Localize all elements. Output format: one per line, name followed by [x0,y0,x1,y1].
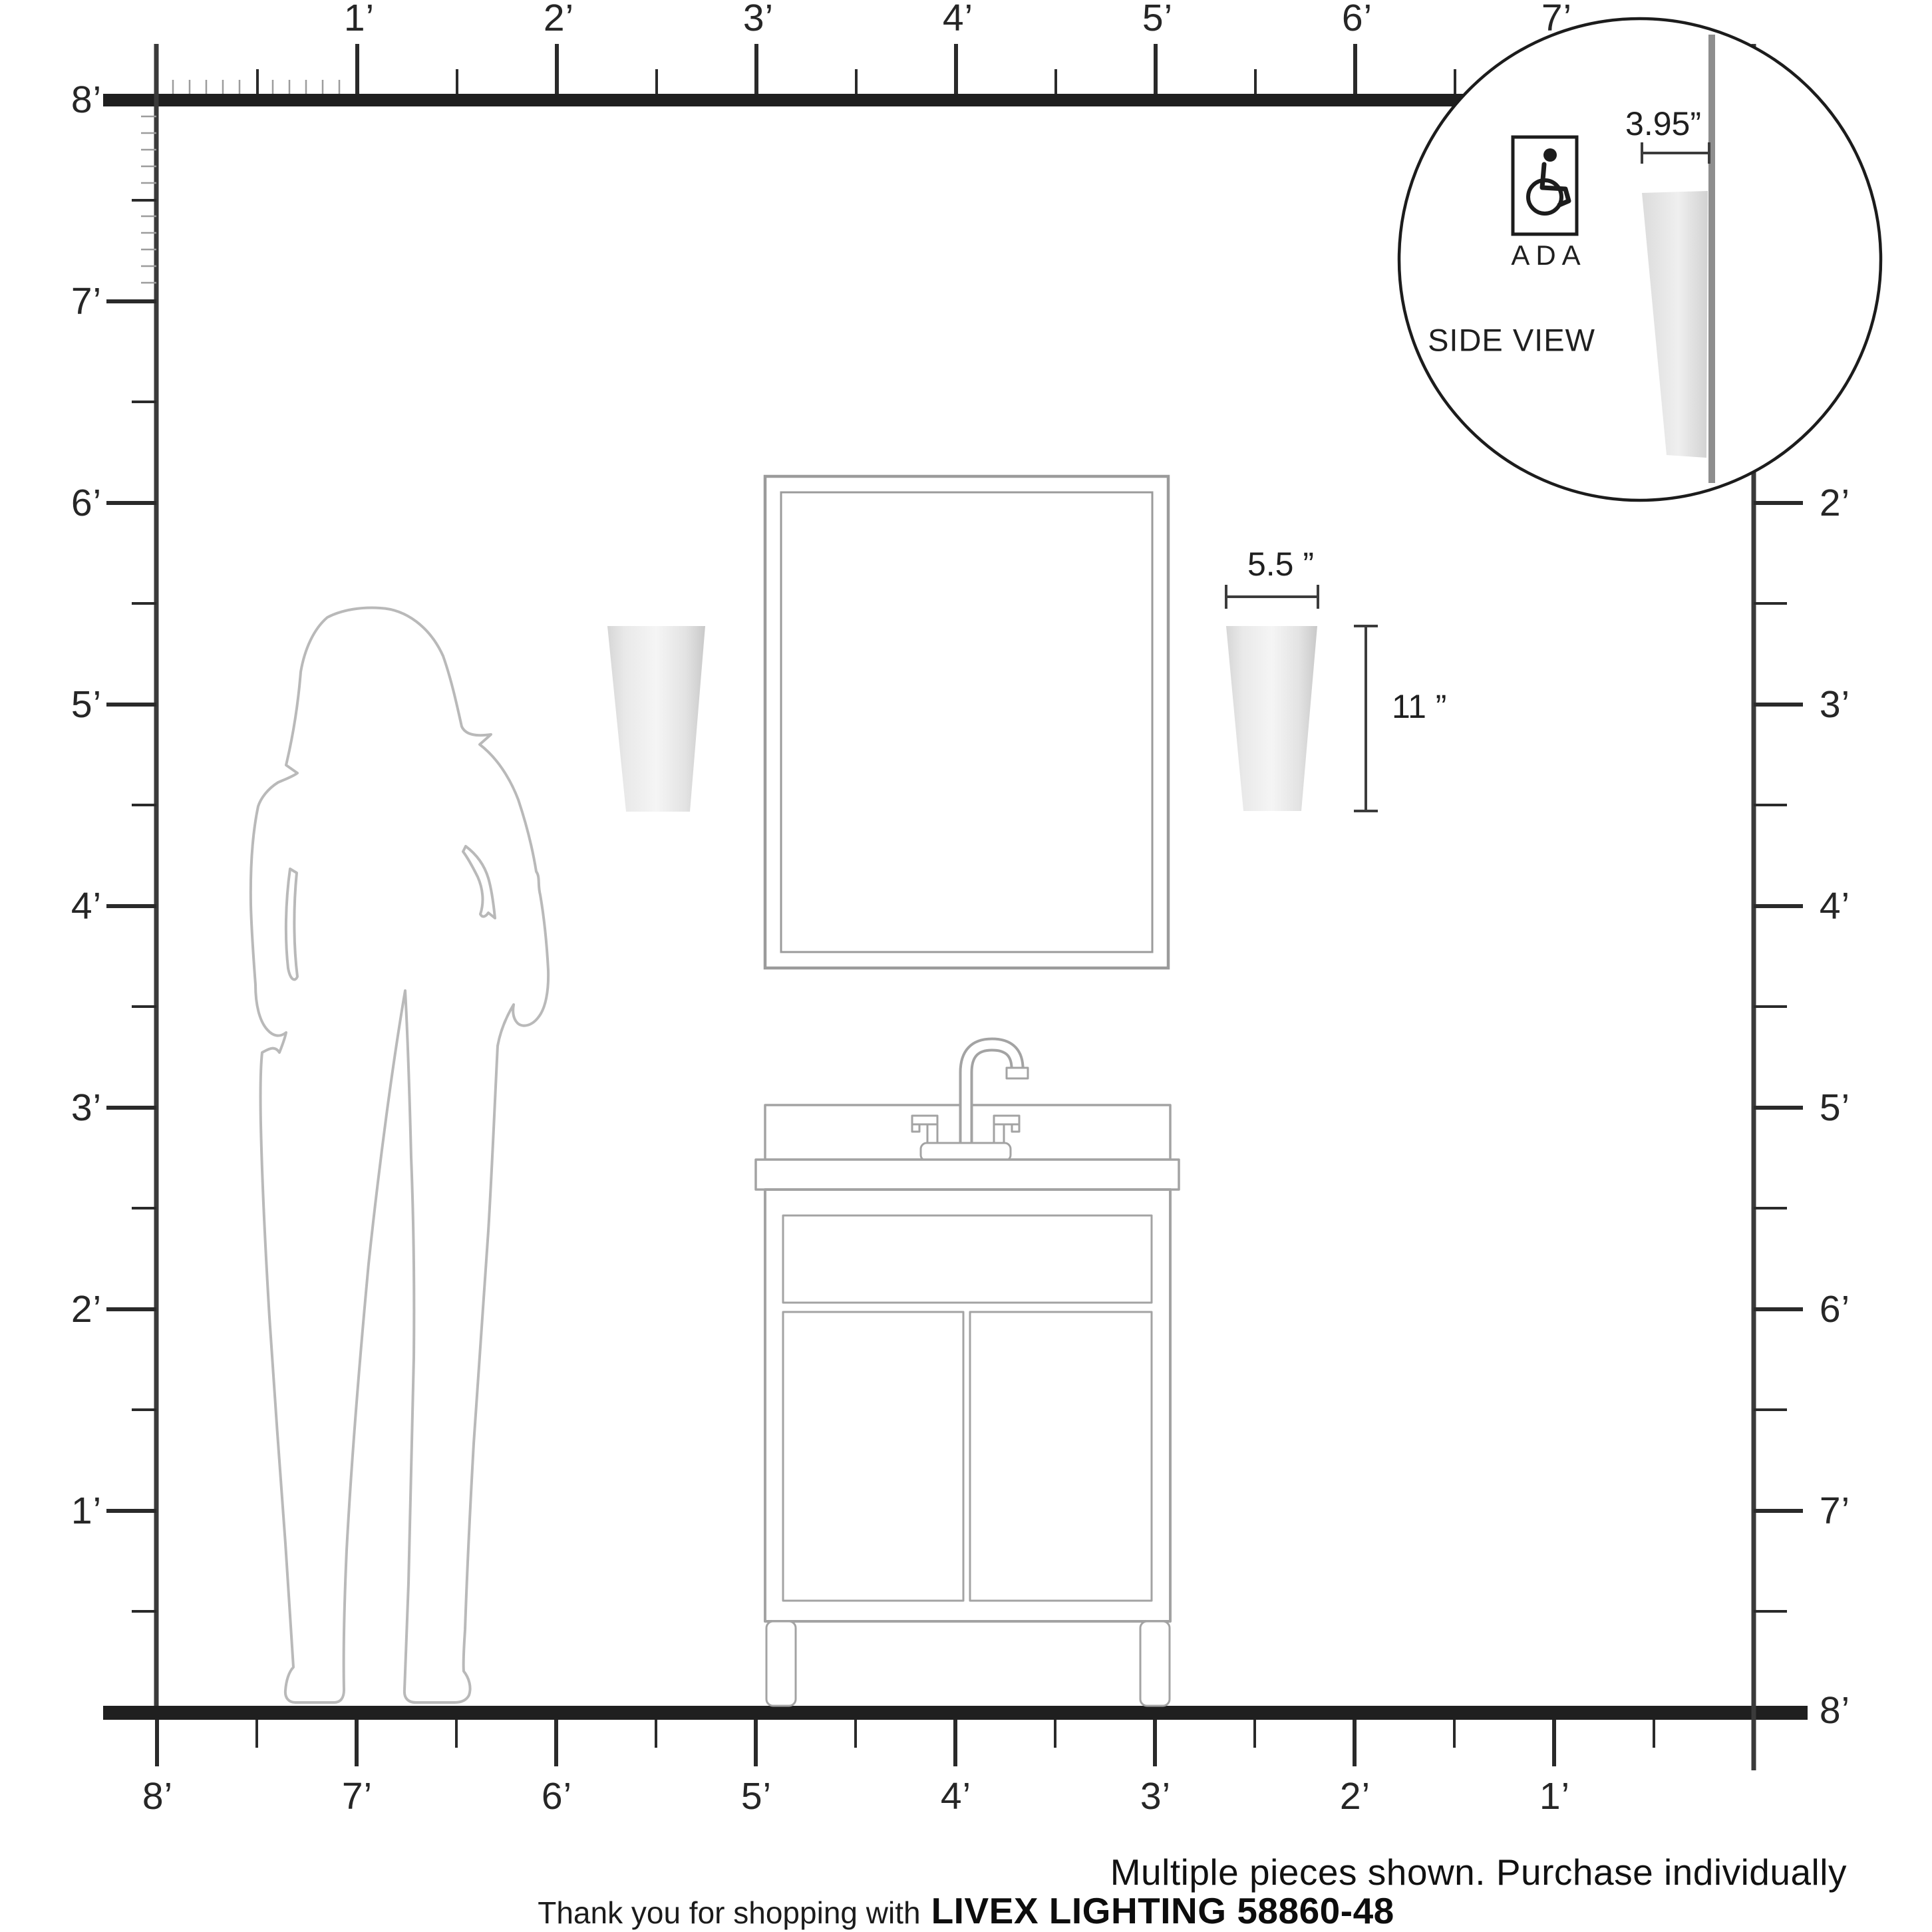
height-dimension-label: 11 ” [1392,687,1446,726]
human-silhouette [251,608,548,1702]
ruler-right-label-5: 5’ [1820,1086,1850,1130]
vanity-door-left [783,1312,963,1601]
ruler-bottom-label-8: 8’ [142,1774,173,1818]
faucet-handle-right-bar [994,1116,1019,1124]
ruler-bottom-label-4: 4’ [941,1774,971,1818]
ruler-left-label-2: 2’ [71,1287,102,1331]
ada-icon-head [1543,148,1557,162]
mirror-outer-frame [765,476,1168,968]
ruler-left-label-5: 5’ [71,683,102,726]
ruler-right-label-2: 2’ [1820,481,1850,525]
depth-dimension-label: 3.95” [1625,104,1701,143]
right-sconce-shade [1226,626,1317,811]
footer-thanks-line: Thank you for shopping with LIVEX LIGHTI… [538,1889,1394,1932]
side-view-label: SIDE VIEW [1428,322,1595,359]
brand-model-text: LIVEX LIGHTING 58860-48 [931,1889,1394,1932]
vanity-drawer-panel [783,1215,1152,1303]
purchase-note: Multiple pieces shown. Purchase individu… [1110,1851,1847,1893]
ruler-top-label-1: 1’ [344,0,375,40]
ruler-top-label-3: 3’ [743,0,774,40]
ruler-top-half-ticks [257,69,1455,94]
ruler-left-label-4: 4’ [71,884,102,928]
faucet-handle-right-stem [994,1124,1004,1144]
width-dimension-line [1226,585,1318,609]
vanity-leg-right [1140,1621,1170,1706]
ruler-top-foot-ticks [357,44,1555,94]
ruler-left-label-6: 6’ [71,481,102,525]
ruler-top-label-7: 7’ [1541,0,1572,40]
left-sconce-shade [607,626,705,812]
ruler-left-label-8: 8’ [71,78,102,122]
ruler-right-label-7: 7’ [1820,1489,1850,1533]
ada-icon [1513,137,1577,234]
vanity [756,1045,1179,1706]
inset-circle [1399,19,1881,500]
height-dimension-line [1354,626,1378,811]
vanity-countertop [756,1160,1179,1190]
ruler-right-label-8: 8’ [1820,1689,1850,1732]
ruler-top-label-5: 5’ [1142,0,1173,40]
silhouette-outline [251,608,548,1702]
ruler-top-label-6: 6’ [1342,0,1372,40]
ruler-top-label-4: 4’ [943,0,973,40]
ruler-bottom-label-1: 1’ [1539,1774,1570,1818]
ruler-bottom-label-2: 2’ [1340,1774,1370,1818]
ruler-right-label-4: 4’ [1820,884,1850,928]
ruler-bottom-label-6: 6’ [542,1774,572,1818]
ruler-left-foot-ticks [106,301,156,1511]
vanity-door-right [970,1312,1152,1601]
faucet-spout-tip [1007,1068,1028,1078]
ruler-left-label-3: 3’ [71,1086,102,1130]
ruler-bottom-label-5: 5’ [741,1774,772,1818]
ruler-left-label-7: 7’ [71,279,102,323]
side-view-inset [1399,19,1881,500]
diagram-artwork [0,0,1932,1932]
ruler-right-half-ticks [1754,402,1787,1611]
ruler-bottom-label-3: 3’ [1140,1774,1171,1818]
width-dimension-label: 5.5 ” [1247,545,1314,583]
faucet-handle-left-tab [912,1124,919,1132]
ruler-top-label-2: 2’ [544,0,574,40]
ada-label: ADA [1511,240,1586,271]
faucet-base-plate [921,1143,1011,1161]
scale-diagram: 1’ 2’ 3’ 4’ 5’ 6’ 7’ 8’ 7’ 6’ 5’ 4’ 3’ 2… [0,0,1932,1932]
vanity-leg-left [766,1621,796,1706]
ruler-right-label-6: 6’ [1820,1287,1850,1331]
faucet-handle-right-tab [1012,1124,1019,1132]
faucet-handle-left-bar [912,1116,937,1124]
ruler-right-label-3: 3’ [1820,683,1850,726]
ruler-left-label-1: 1’ [71,1489,102,1533]
faucet-handle-left-stem [927,1124,937,1144]
ruler-right-foot-ticks [1754,301,1803,1511]
ruler-floor-line [103,1706,1808,1720]
mirror [765,476,1168,968]
thanks-prefix-text: Thank you for shopping with [538,1895,920,1931]
ruler-bottom-label-7: 7’ [342,1774,373,1818]
